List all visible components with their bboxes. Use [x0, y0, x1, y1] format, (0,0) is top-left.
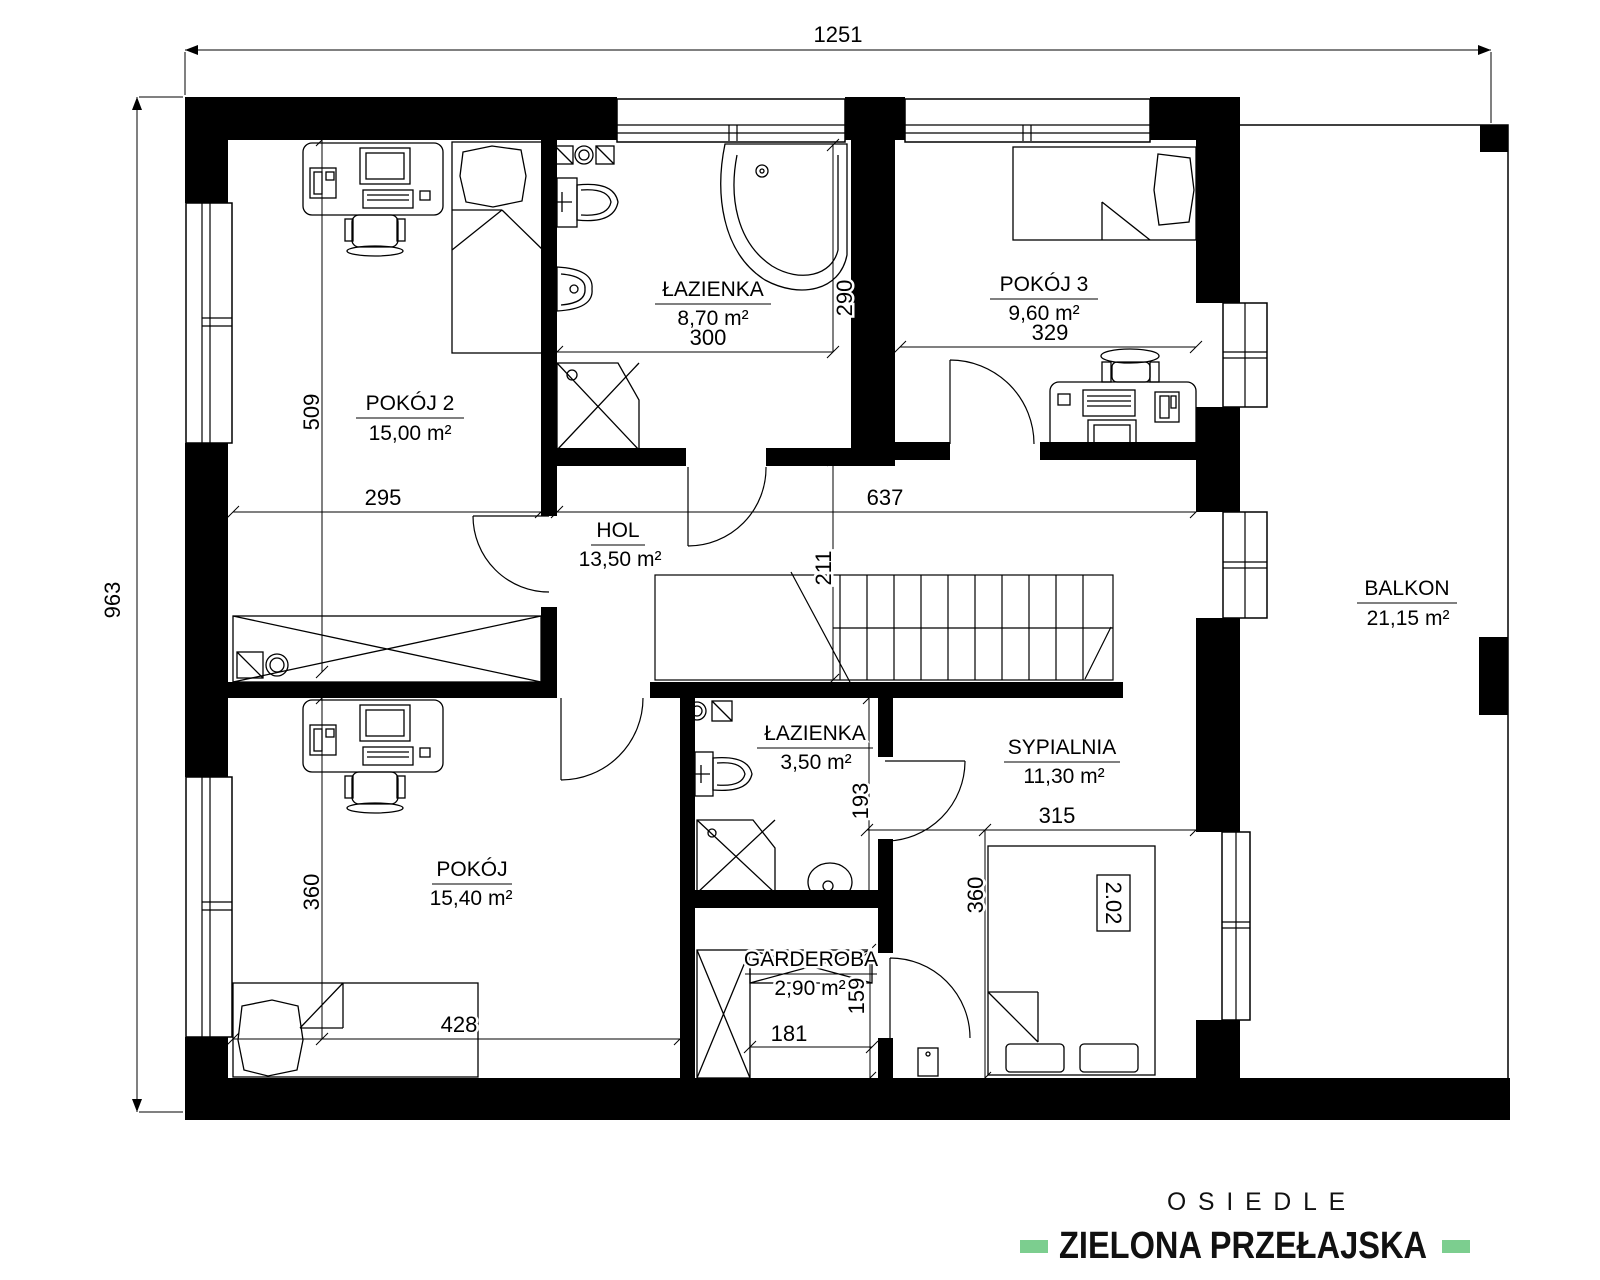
pillow-icon — [1080, 1044, 1138, 1072]
floor-plan-drawing: 1251 963 295 509 300 290 329 637 211 315… — [0, 0, 1600, 1280]
dim-garderoba-height: 159 — [844, 978, 869, 1015]
room-area-lazienka-dolna: 3,50 m² — [780, 751, 851, 774]
room-area-garderoba: 2,90 m² — [774, 977, 845, 1000]
dim-pokoj-height: 360 — [299, 874, 324, 911]
room-label-pokoj: POKÓJ — [436, 858, 507, 881]
office-chair-icon — [345, 772, 405, 813]
window-icon — [1223, 512, 1267, 618]
door-icon — [950, 360, 1034, 444]
arrow-icon — [132, 97, 142, 110]
window-icon — [186, 777, 232, 1037]
double-bed-icon — [988, 846, 1155, 1075]
wardrobe-icon — [697, 950, 750, 1078]
dim-sypialnia-height: 360 — [963, 877, 988, 914]
dim-hol-width: 637 — [867, 485, 904, 510]
logo-line2: ZIELONA PRZEŁAJSKA — [1059, 1225, 1427, 1267]
room-label-balkon: BALKON — [1364, 577, 1449, 600]
nightstand-icon — [918, 1048, 938, 1076]
bed-icon — [452, 142, 545, 353]
arrow-icon — [132, 1099, 142, 1112]
door-icon — [688, 467, 766, 546]
balcony-pillar — [1480, 125, 1508, 152]
door-icon — [561, 698, 643, 780]
balcony-outline — [1240, 125, 1508, 1078]
pillow-icon — [460, 146, 526, 207]
dim-garderoba-width: 181 — [771, 1021, 808, 1046]
window-icon — [617, 99, 845, 142]
dim-hol-height: 211 — [811, 550, 836, 585]
pillow-icon — [1006, 1044, 1064, 1072]
wardrobe-icon — [233, 616, 541, 682]
dim-total-width: 1251 — [814, 22, 863, 47]
dim-pokoj2-height: 509 — [299, 394, 324, 431]
logo-dash-right — [1442, 1240, 1470, 1253]
toilet-icon — [692, 752, 752, 796]
dim-lazienka-dolna-height: 193 — [848, 783, 873, 820]
room-label-lazienka-dolna: ŁAZIENKA — [764, 722, 866, 745]
washer-dryer-icon — [555, 146, 614, 164]
room-label-pokoj3: POKÓJ 3 — [1000, 273, 1089, 296]
bed-icon — [1013, 147, 1196, 240]
window-icon — [905, 99, 1150, 142]
arrow-icon — [185, 45, 198, 55]
pillow-icon — [238, 1000, 303, 1076]
stairs — [655, 572, 1113, 684]
toilet-icon — [552, 178, 618, 227]
room-area-pokoj3: 9,60 m² — [1008, 302, 1079, 325]
room-label-garderoba: GARDEROBA — [744, 948, 878, 971]
room-label-pokoj2: POKÓJ 2 — [366, 392, 455, 415]
shower-icon — [557, 363, 639, 450]
pillow-icon — [1154, 154, 1194, 225]
room-label-hol: HOL — [596, 519, 639, 542]
room-area-pokoj: 15,40 m² — [430, 887, 513, 910]
shower-icon — [697, 820, 775, 893]
balcony-door-icon — [1222, 832, 1250, 1020]
logo: OSIEDLE ZIELONA PRZEŁAJSKA — [1020, 1188, 1470, 1267]
room-labels: POKÓJ 2 15,00 m² ŁAZIENKA 8,70 m² POKÓJ … — [356, 273, 1457, 1000]
dim-pokoj-width: 428 — [441, 1012, 478, 1037]
room-area-balkon: 21,15 m² — [1367, 607, 1450, 630]
bed-number-label: 2.02 — [1101, 882, 1126, 925]
room-area-pokoj2: 15,00 m² — [369, 422, 452, 445]
room-area-hol: 13,50 m² — [579, 548, 662, 571]
door-icon — [890, 958, 970, 1038]
window-icon — [1223, 303, 1267, 407]
bathtub-icon — [721, 144, 847, 290]
desk-icon — [303, 143, 443, 215]
logo-line1: OSIEDLE — [1167, 1188, 1357, 1216]
office-chair-icon — [1101, 349, 1159, 382]
room-area-lazienka-gorna: 8,70 m² — [677, 307, 748, 330]
door-icon — [473, 516, 549, 592]
office-chair-icon — [345, 215, 405, 256]
logo-dash-left — [1020, 1240, 1048, 1253]
dim-total-height: 963 — [100, 582, 125, 619]
door-icon — [885, 761, 965, 841]
dim-lazienka-gorna-height: 290 — [832, 280, 857, 317]
room-label-sypialnia: SYPIALNIA — [1008, 736, 1117, 759]
dim-sypialnia-width: 315 — [1039, 803, 1076, 828]
sink-icon — [557, 267, 592, 311]
floor-plan-page: 1251 963 295 509 300 290 329 637 211 315… — [0, 0, 1600, 1280]
arrow-icon — [1478, 45, 1491, 55]
balcony-pillar — [1479, 637, 1508, 715]
dim-pokoj2-width: 295 — [365, 485, 402, 510]
room-label-lazienka-gorna: ŁAZIENKA — [662, 278, 764, 301]
stair-direction-line — [1085, 627, 1111, 679]
window-icon — [186, 203, 232, 443]
desk-icon — [303, 700, 443, 772]
room-area-sypialnia: 11,30 m² — [1023, 765, 1104, 788]
